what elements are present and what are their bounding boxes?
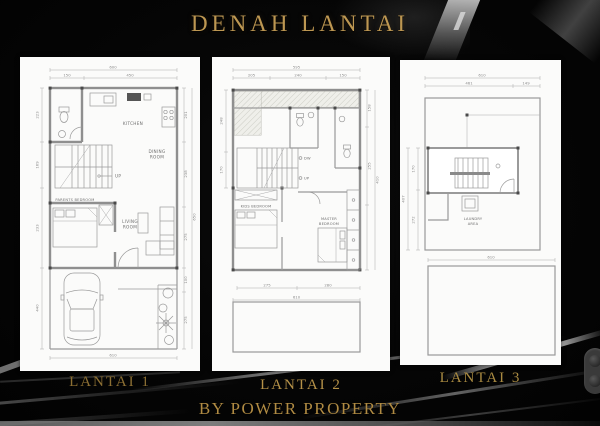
dim-right: 158 bbox=[367, 104, 372, 112]
dim-right: 275 bbox=[183, 316, 188, 324]
dim-top-seg: 205 bbox=[248, 73, 256, 78]
dim-top-seg: 149 bbox=[522, 81, 530, 86]
stairs-icon bbox=[55, 145, 112, 188]
floor-plan-panel-3: 610 461 149 407 170 272 610 bbox=[400, 60, 561, 365]
stairs-icon bbox=[237, 148, 302, 188]
floor-label-lantai-2: LANTAI 2 bbox=[212, 377, 390, 394]
poster-background: DENAH LANTAI 600 150 450 223 169 233 440 bbox=[0, 0, 600, 426]
room-label-up: UP bbox=[304, 177, 310, 181]
dim-left: 440 bbox=[35, 304, 40, 312]
kids-bed-icon bbox=[235, 190, 277, 248]
dim-right: 238 bbox=[183, 170, 188, 178]
floor-plan-drawing-3: 610 461 149 407 170 272 610 bbox=[400, 60, 561, 365]
dim-left: 170 bbox=[219, 166, 224, 174]
terrace-outline bbox=[233, 302, 360, 352]
bottom-light-band bbox=[0, 421, 600, 426]
room-label-master: MASTER bbox=[321, 217, 337, 221]
dim-top-seg: 150 bbox=[63, 73, 71, 78]
parents-bed-icon bbox=[53, 205, 113, 247]
room-label-master: BEDROOM bbox=[319, 222, 339, 226]
master-bed-icon bbox=[308, 190, 360, 270]
dim-top-seg: 450 bbox=[126, 73, 134, 78]
lower-floor-outline bbox=[428, 266, 555, 355]
dim-right: 275 bbox=[183, 233, 188, 241]
floor-plan-panel-2: 595 205 240 150 248 170 158 255 410 275 bbox=[212, 57, 390, 371]
dim-mid: 280 bbox=[324, 283, 332, 288]
dim-right: 255 bbox=[367, 162, 372, 170]
room-label-living: LIVING bbox=[122, 219, 138, 224]
dim-top-seg: 240 bbox=[294, 73, 302, 78]
dim-left: 223 bbox=[35, 111, 40, 119]
floor-label-lantai-3: LANTAI 3 bbox=[400, 370, 561, 387]
entry-door-icon bbox=[118, 248, 138, 268]
dim-mid: 275 bbox=[263, 283, 271, 288]
dim-bottom: 610 bbox=[487, 255, 495, 260]
room-label-parents-bedroom: PARENTS BEDROOM bbox=[55, 198, 94, 202]
stair-hall bbox=[427, 147, 520, 195]
laundry-icons bbox=[428, 193, 478, 220]
room-label-dining: DINING bbox=[148, 149, 165, 154]
dim-left: 169 bbox=[35, 161, 40, 169]
dim-left: 248 bbox=[219, 117, 224, 125]
sofa-icon bbox=[138, 207, 174, 255]
widget-button-bottom[interactable] bbox=[589, 375, 600, 387]
dim-left: 233 bbox=[35, 224, 40, 232]
dim-left-total: 407 bbox=[401, 195, 406, 203]
car-icon bbox=[61, 273, 103, 345]
dim-top-seg: 150 bbox=[339, 73, 347, 78]
dim-right: 201 bbox=[183, 111, 188, 119]
floor-plan-drawing-1: 600 150 450 223 169 233 440 201 238 275 … bbox=[20, 57, 200, 371]
room-label-kitchen: KITCHEN bbox=[123, 121, 143, 126]
dim-right: 100 bbox=[183, 276, 188, 284]
dim-top-total: 610 bbox=[478, 73, 486, 78]
bathroom-icons bbox=[59, 107, 83, 139]
dim-bottom: 610 bbox=[293, 295, 301, 300]
room-label-living: ROOM bbox=[123, 225, 137, 230]
room-label-laundry: LAUNDRY bbox=[464, 217, 483, 221]
brand-footer: BY POWER PROPERTY bbox=[0, 399, 600, 419]
floor-plan-panel-1: 600 150 450 223 169 233 440 201 238 275 … bbox=[20, 57, 200, 371]
stair-rail bbox=[450, 172, 490, 175]
dim-top-seg: 461 bbox=[465, 81, 473, 86]
room-label-dw: DW bbox=[304, 157, 311, 161]
dim-bottom: 610 bbox=[109, 353, 117, 358]
floating-side-widget[interactable] bbox=[584, 348, 600, 394]
page-title: DENAH LANTAI bbox=[0, 11, 600, 37]
dim-right-total: 410 bbox=[375, 176, 380, 184]
dim-right-total: 650 bbox=[192, 213, 197, 221]
floor-plan-drawing-2: 595 205 240 150 248 170 158 255 410 275 bbox=[212, 57, 390, 371]
bathroom-icons bbox=[297, 112, 351, 158]
plants-icon bbox=[156, 285, 177, 349]
widget-button-top[interactable] bbox=[589, 355, 600, 367]
walls-plan1 bbox=[49, 87, 179, 349]
dim-top-total: 595 bbox=[293, 65, 301, 70]
dim-left: 272 bbox=[411, 216, 416, 224]
room-label-dining: ROOM bbox=[150, 155, 164, 160]
room-label-laundry: AREA bbox=[468, 222, 479, 226]
dim-top-total: 600 bbox=[109, 65, 117, 70]
room-label-up: UP bbox=[115, 174, 121, 179]
room-label-kids-bedroom: KIDS BEDROOM bbox=[241, 205, 272, 209]
dim-left: 170 bbox=[411, 165, 416, 173]
floor-label-lantai-1: LANTAI 1 bbox=[20, 374, 200, 391]
